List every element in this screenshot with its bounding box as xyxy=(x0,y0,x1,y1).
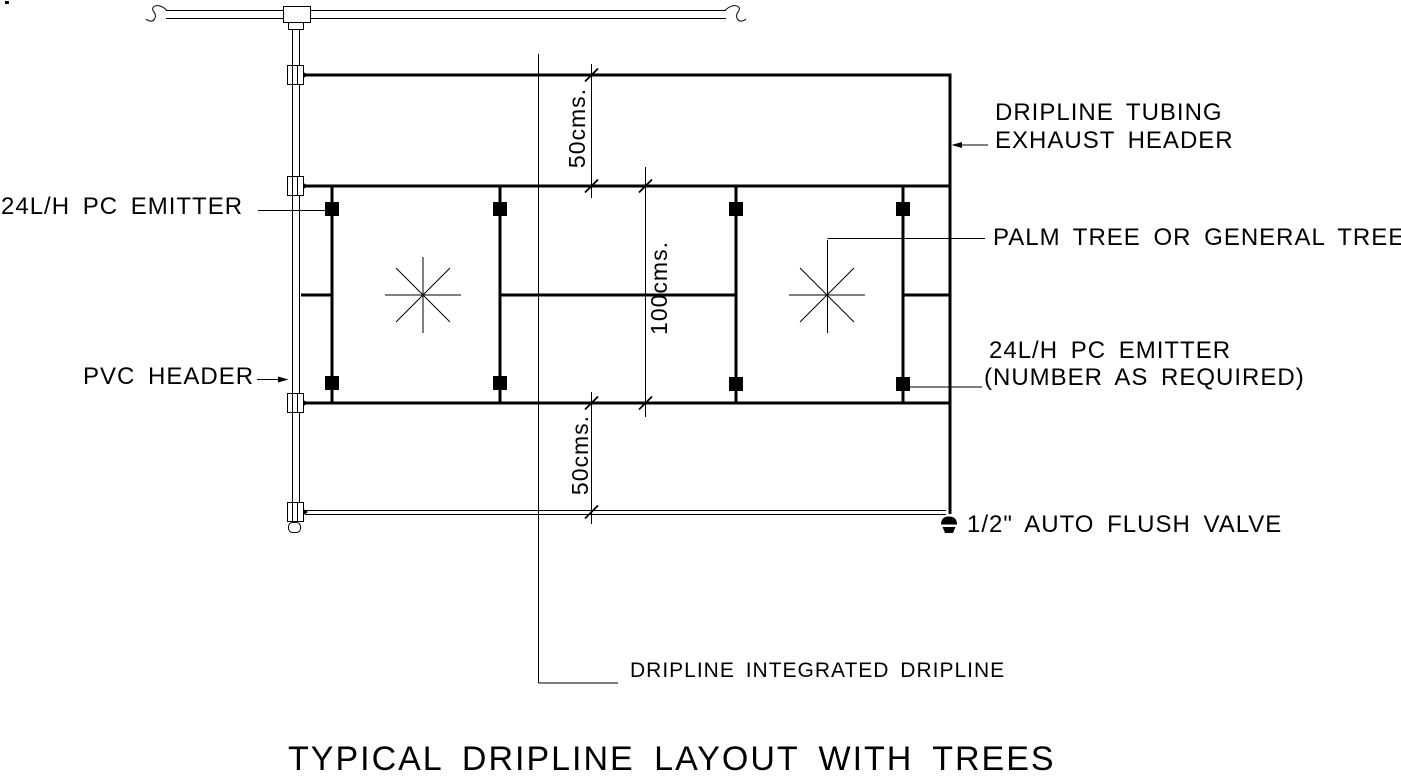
arrowhead-icon xyxy=(952,142,963,148)
label-emitter-left: 24L/H PC EMITTER xyxy=(1,193,243,221)
emitter-square xyxy=(729,377,743,391)
dim-text-50-top: 50cms. xyxy=(564,78,590,178)
emitter-square xyxy=(896,202,910,216)
pvc-header-pipe xyxy=(288,29,309,533)
label-exhaust-header-line2: EXHAUST HEADER xyxy=(995,127,1234,155)
label-emitter-right-line2: (NUMBER AS REQUIRED) xyxy=(984,364,1305,392)
header-end-cap xyxy=(289,523,301,533)
dim-text-100: 100cms. xyxy=(646,238,672,338)
label-pvc-header: PVC HEADER xyxy=(83,363,254,391)
label-dripline-integrated: DRIPLINE INTEGRATED DRIPLINE xyxy=(630,659,1005,683)
flush-line xyxy=(305,511,946,515)
tree-symbol xyxy=(789,240,865,333)
emitter-square xyxy=(325,376,339,390)
header-fitting xyxy=(288,66,309,85)
leader-lines xyxy=(257,142,988,683)
label-palm-tree: PALM TREE OR GENERAL TREE xyxy=(993,224,1401,252)
emitter-square xyxy=(325,202,339,216)
label-emitter-right-line1: 24L/H PC EMITTER xyxy=(989,337,1231,365)
emitter-square xyxy=(896,377,910,391)
supply-pipe xyxy=(146,6,746,22)
dripline-grid xyxy=(301,74,952,515)
label-flush-valve: 1/2" AUTO FLUSH VALVE xyxy=(967,511,1282,539)
pipe-break-icon xyxy=(725,6,746,22)
pipe-break-icon xyxy=(146,6,167,22)
drawing-title: TYPICAL DRIPLINE LAYOUT WITH TREES xyxy=(288,740,1056,779)
tree-symbol xyxy=(385,257,461,333)
dimension-lines xyxy=(539,54,653,683)
flush-valve-icon xyxy=(941,517,957,534)
label-exhaust-header-line1: DRIPLINE TUBING xyxy=(995,99,1223,127)
header-fitting xyxy=(288,177,309,196)
drawing-canvas: 24L/H PC EMITTER PVC HEADER DRIPLINE TUB… xyxy=(0,0,1401,782)
emitter-square xyxy=(493,376,507,390)
tee-fitting xyxy=(284,7,311,30)
dim-text-50-bottom: 50cms. xyxy=(567,405,593,505)
header-fitting xyxy=(288,503,309,522)
emitter-square xyxy=(729,202,743,216)
header-fitting xyxy=(288,394,309,413)
emitter-square xyxy=(493,202,507,216)
arrowhead-icon xyxy=(278,377,289,383)
